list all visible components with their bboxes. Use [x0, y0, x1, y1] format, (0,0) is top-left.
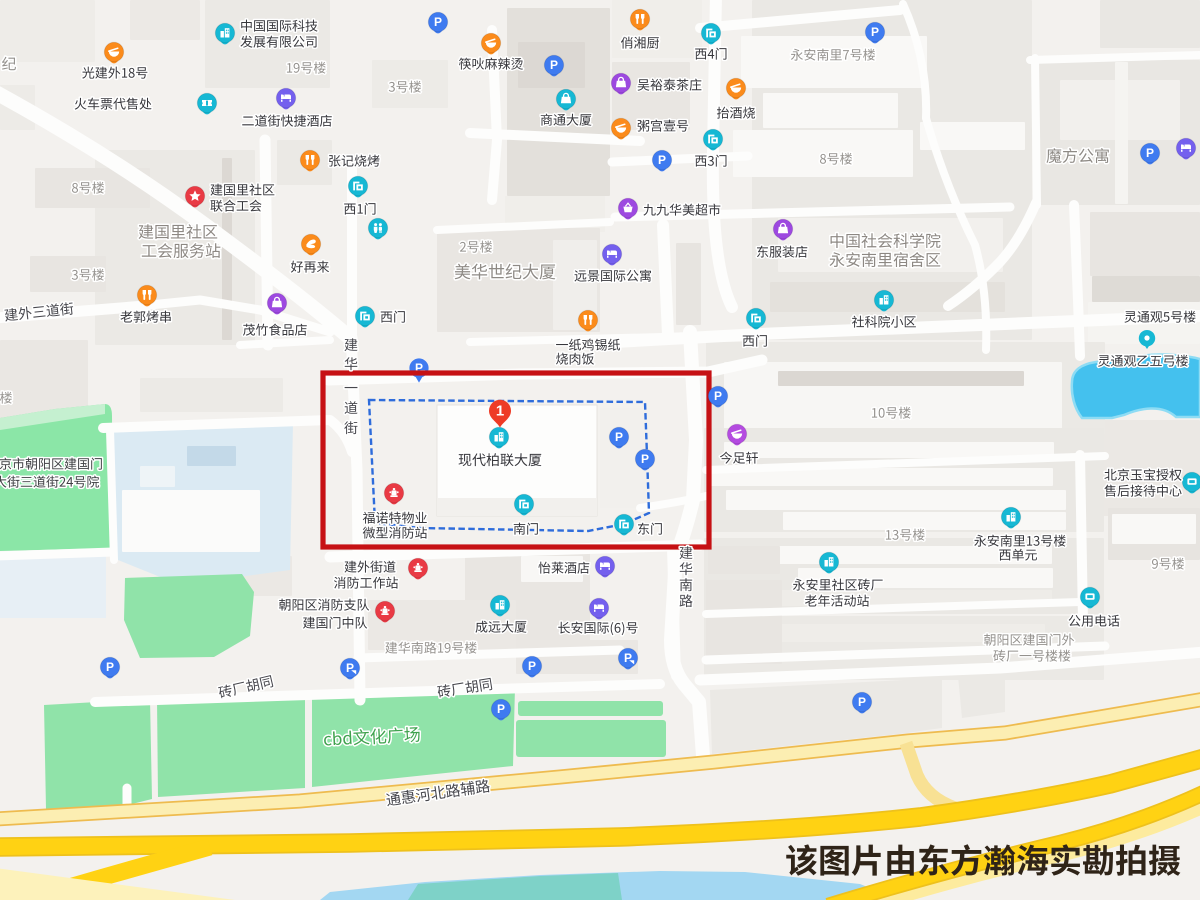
- svg-text:P: P: [615, 430, 623, 444]
- svg-text:1: 1: [496, 403, 504, 420]
- svg-text:P: P: [528, 659, 536, 673]
- svg-text:P: P: [497, 702, 505, 716]
- svg-text:P: P: [1146, 146, 1154, 160]
- svg-text:P: P: [641, 452, 649, 466]
- svg-text:P: P: [624, 651, 632, 665]
- svg-text:P: P: [714, 389, 722, 403]
- svg-text:P: P: [550, 58, 558, 72]
- svg-text:P: P: [106, 660, 114, 674]
- svg-text:P: P: [346, 661, 354, 675]
- svg-text:P: P: [871, 25, 879, 39]
- svg-text:P: P: [658, 153, 666, 167]
- svg-text:P: P: [434, 15, 442, 29]
- svg-text:P: P: [858, 695, 866, 709]
